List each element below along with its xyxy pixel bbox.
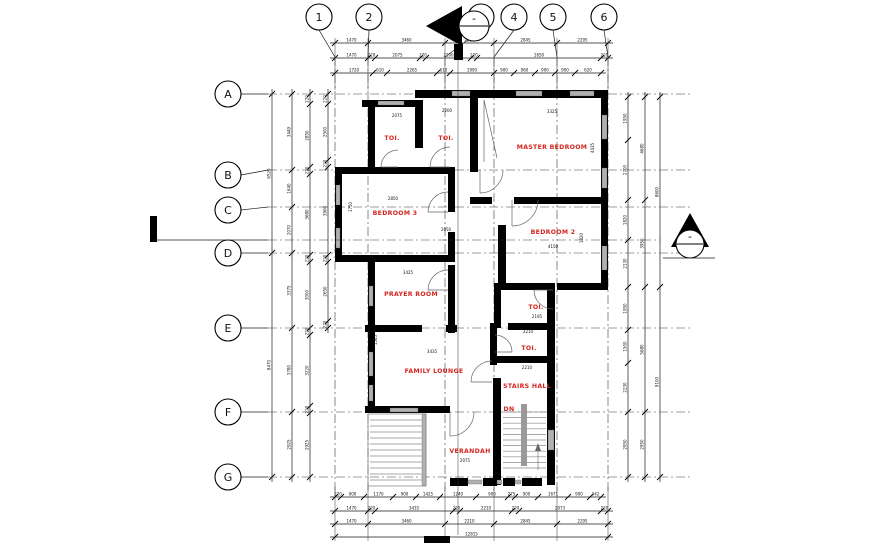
- dimension-label: 220: [368, 506, 376, 511]
- dimension-label: 2925: [287, 439, 292, 450]
- dimension-label: 1470: [346, 53, 357, 58]
- room-label: MASTER BEDROOM: [517, 144, 588, 151]
- dimension-label: 1470: [346, 38, 357, 43]
- stair-direction-label: DN: [504, 406, 515, 413]
- dimension-label: 3780: [287, 364, 292, 375]
- dimension-label: 220: [419, 53, 427, 58]
- dimension-label: 900: [541, 68, 549, 73]
- dimension-label: 1650: [534, 53, 545, 58]
- door-swing: [430, 147, 450, 167]
- room-label: VERANDAH: [449, 448, 490, 455]
- dimension-label: 2200: [442, 108, 453, 113]
- wall-segment: [450, 478, 468, 486]
- dimension-label: 5680: [640, 344, 645, 355]
- window: [336, 185, 340, 205]
- room-label: TOI.: [528, 304, 543, 311]
- dimension-label: 2850: [388, 196, 399, 201]
- dimension-label: 220: [453, 506, 461, 511]
- dimension-label: 342: [592, 492, 600, 497]
- room-label: BEDROOM 2: [531, 229, 576, 236]
- dimension-label: 2210: [522, 365, 533, 370]
- dimension-label: 4435: [590, 142, 595, 153]
- dimension-label: 2075: [392, 53, 403, 58]
- dimension-label: 2130: [623, 258, 628, 269]
- room-label: STAIRS HALL: [503, 383, 551, 390]
- dimension-label: 6520: [267, 168, 272, 179]
- wall-segment: [448, 265, 455, 333]
- dimension-label: 4680: [640, 143, 645, 154]
- dimension-label: 1720: [349, 68, 360, 73]
- window: [602, 168, 607, 188]
- dimension-label: 900: [488, 492, 496, 497]
- wall-segment: [368, 100, 375, 172]
- grid-bubble-label: 2: [366, 11, 373, 24]
- dimension-label: 900: [523, 492, 531, 497]
- wall-segment: [494, 283, 501, 328]
- dimension-label: 3325: [547, 109, 558, 114]
- grid-bubble-label: D: [224, 247, 232, 260]
- dimension-label: 1820: [623, 214, 628, 225]
- dimension-label: 2845: [520, 38, 531, 43]
- dimension-label: 220: [305, 327, 310, 335]
- dimension-label: 1820: [579, 232, 584, 243]
- dimension-label: 3449: [287, 126, 292, 137]
- dimension-label: 220: [323, 320, 328, 328]
- dimension-label: 2295: [577, 519, 588, 524]
- room-label: PRAYER ROOM: [384, 291, 438, 298]
- dimension-label: 900: [575, 492, 583, 497]
- dimension-label: 2070: [287, 224, 292, 235]
- wall-segment: [335, 167, 455, 174]
- dimension-label: 220: [305, 95, 310, 103]
- dimension-label: 2845: [520, 519, 531, 524]
- room-label: TOI.: [384, 135, 399, 142]
- wall-segment: [490, 356, 555, 363]
- section-flag-icon: [150, 216, 157, 242]
- section-arrow-icon: [426, 6, 462, 46]
- wall-segment: [446, 325, 457, 332]
- dimension-label: 2075: [392, 113, 403, 118]
- dimension-label: 3950: [640, 238, 645, 249]
- window: [336, 228, 340, 248]
- wall-segment: [514, 197, 608, 204]
- dimension-label: 275: [508, 492, 516, 497]
- door-swing: [495, 335, 512, 352]
- dimension-label: 1470: [346, 506, 357, 511]
- wall-segment: [522, 478, 542, 486]
- window: [390, 408, 418, 412]
- dimension-label: 3435: [409, 506, 420, 511]
- section-marker-text: -: [688, 230, 692, 243]
- window: [570, 91, 594, 96]
- window: [516, 91, 542, 96]
- stair-direction-arrow: [535, 443, 541, 451]
- dimension-label: 2295: [577, 38, 588, 43]
- wall-segment: [557, 283, 608, 290]
- grid-bubble-label: 5: [550, 11, 557, 24]
- dimension-label: 3425: [403, 270, 414, 275]
- wall-segment: [448, 167, 455, 212]
- window: [452, 91, 470, 96]
- window: [468, 480, 482, 484]
- window: [369, 286, 373, 306]
- grid-bubble-label: E: [225, 322, 232, 335]
- dimension-label: 2195: [532, 314, 543, 319]
- grid-bubble-label: A: [224, 88, 232, 101]
- dimension-label: 1950: [623, 303, 628, 314]
- room-label: TOI.: [521, 345, 536, 352]
- grid-bubble-label: C: [224, 204, 232, 217]
- scale-bar: [424, 536, 450, 543]
- door-swing: [484, 100, 497, 162]
- dimension-label: 2230: [623, 382, 628, 393]
- dimension-label: 220: [305, 254, 310, 262]
- wall-segment: [415, 100, 423, 148]
- dimension-label: 3375: [287, 285, 292, 296]
- dimension-label: 610: [376, 68, 384, 73]
- dimension-label: 220: [512, 506, 520, 511]
- dimension-label: 2265: [407, 68, 418, 73]
- window: [548, 430, 554, 450]
- door-swing: [471, 361, 492, 382]
- dimension-label: 2210: [464, 519, 475, 524]
- dimension-label: 1565: [373, 334, 378, 345]
- wall-segment: [494, 283, 555, 290]
- drawing-sheet: 1470346022102845229514702202075220220022…: [0, 0, 889, 547]
- grid-bubble-label: 1: [316, 11, 323, 24]
- window: [378, 101, 404, 105]
- grid-bubble-label: F: [225, 406, 231, 419]
- door-swing: [450, 412, 474, 436]
- room-label: TOI.: [438, 135, 453, 142]
- door-swing: [381, 150, 398, 167]
- window: [515, 480, 521, 484]
- dimension-label: 220: [470, 53, 478, 58]
- dimension-label: 900: [349, 492, 357, 497]
- wall-segment: [503, 478, 515, 486]
- stairs-hall-stairs: [503, 404, 546, 470]
- dimension-label: 2075: [460, 458, 471, 463]
- dimension-label: 2050: [441, 227, 452, 232]
- dimension-label: 2210: [523, 329, 534, 334]
- wall-segment: [498, 225, 506, 285]
- window: [602, 115, 607, 139]
- dimension-label: 2850: [305, 130, 310, 141]
- wall-segment: [493, 378, 501, 485]
- dimension-label: 8600: [655, 186, 660, 197]
- dimension-label: 2950: [640, 439, 645, 450]
- dimension-label: 3460: [401, 519, 412, 524]
- wall-segment: [365, 325, 422, 332]
- dimension-label: 2925: [305, 439, 310, 450]
- dimension-label: 900: [401, 492, 409, 497]
- dimension-label: 2950: [623, 439, 628, 450]
- grid-lines: [268, 57, 692, 492]
- floor-plan-drawing: 1470346022102845229514702202075220220022…: [0, 0, 889, 547]
- door-swing: [480, 170, 503, 193]
- dimension-label: 2210: [481, 506, 492, 511]
- dimension-label: 8470: [267, 359, 272, 370]
- section-marker-text: -: [472, 12, 476, 25]
- dimension-label: 220: [368, 53, 376, 58]
- grid-bubble-label: 6: [601, 11, 608, 24]
- wall-segment: [470, 197, 492, 204]
- wall-segment: [470, 90, 478, 172]
- dimension-label: 220: [334, 492, 342, 497]
- dimension-label: 1500: [623, 341, 628, 352]
- dimension-label: 3435: [427, 349, 438, 354]
- wall-segment: [448, 232, 455, 259]
- dimension-label: 2073: [555, 506, 566, 511]
- dimension-label: 620: [584, 68, 592, 73]
- dimension-label: 1425: [423, 492, 434, 497]
- dimension-label: 960: [521, 68, 529, 73]
- grid-bubble-label: B: [224, 169, 232, 182]
- dimension-label: 4150: [548, 244, 559, 249]
- dimension-label: 12815: [465, 532, 478, 537]
- dimension-label: 1170: [373, 492, 384, 497]
- dimension-label: 220: [323, 159, 328, 167]
- dimension-label: 2650: [323, 286, 328, 297]
- window: [602, 246, 607, 270]
- dimension-label: 220: [323, 95, 328, 103]
- grid-bubble-label: 4: [511, 11, 518, 24]
- dimension-label: 3000: [305, 289, 310, 300]
- window: [497, 480, 502, 484]
- dimension-label: 1470: [346, 519, 357, 524]
- dimension-label: 9100: [655, 376, 660, 387]
- dimension-label: 2500: [323, 126, 328, 137]
- dimension-label: 1990: [467, 68, 478, 73]
- dimension-label: 3460: [401, 38, 412, 43]
- grid-bubble-label: G: [224, 471, 233, 484]
- room-label: FAMILY LOUNGE: [405, 368, 464, 375]
- window: [369, 385, 373, 401]
- dimension-label: 1950: [623, 113, 628, 124]
- dimension-label: 220: [323, 254, 328, 262]
- dimension-label: 900: [500, 68, 508, 73]
- dimension-label: 3220: [305, 365, 310, 376]
- exterior-steps: [368, 414, 426, 486]
- wall-segment: [335, 255, 455, 262]
- dimension-label: 1640: [287, 183, 292, 194]
- room-label: BEDROOM 3: [373, 210, 418, 217]
- window: [369, 352, 373, 376]
- dimension-label: 3680: [305, 209, 310, 220]
- dimension-label: 900: [561, 68, 569, 73]
- dimension-label: 610: [440, 68, 448, 73]
- dimension-label: 1750: [348, 201, 353, 212]
- dimension-label: 220: [601, 506, 609, 511]
